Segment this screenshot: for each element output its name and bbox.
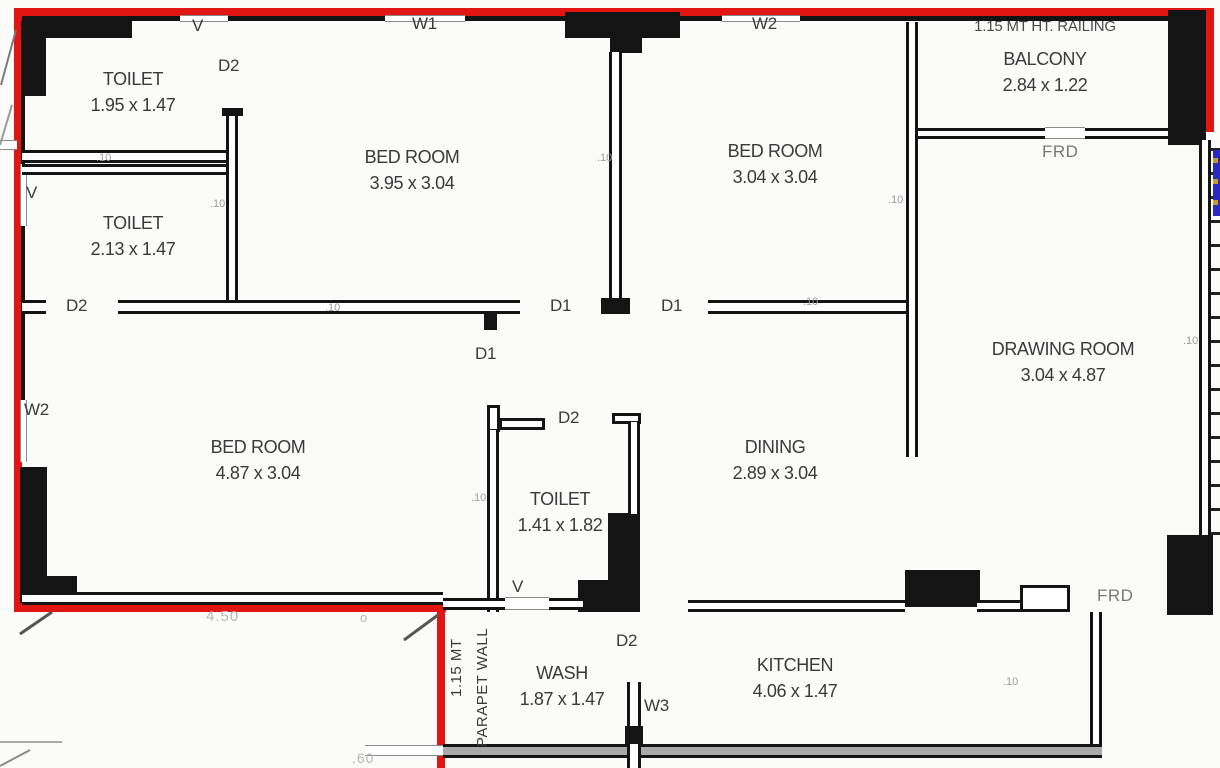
window-mark-w3: W3 [644,696,669,716]
room-label-bedroom-2: BED ROOM 3.04 x 3.04 [728,138,823,190]
window-mark-v-wash: V [512,577,523,597]
room-label-kitchen: KITCHEN 4.06 x 1.47 [753,652,838,704]
door-jamb [499,418,545,430]
window-v-wash [505,597,549,610]
outside-tick [0,140,17,150]
room-dims: 3.04 x 3.04 [728,164,823,190]
door-mark-d2-kitchen: D2 [616,631,637,651]
door-frd-balcony-opening [1045,127,1085,139]
wall-thickness-mark: .10 [471,492,486,504]
wall-toilet-right [226,112,238,302]
door-mark-d1-bedroom2: D1 [661,296,682,316]
room-dims: 1.95 x 1.47 [91,92,176,118]
outside-double-line [365,745,443,756]
column [1168,10,1206,145]
parapet-note-height: 1.15 MT [448,614,468,722]
room-dims: 4.06 x 1.47 [753,678,838,704]
door-mark-d2-toilet-mid: D2 [558,408,579,428]
room-name: BED ROOM [728,138,823,164]
door-mark-frd-entry: FRD [1097,586,1133,606]
window-mark-w1: W1 [412,14,437,34]
wall-notch [484,314,497,330]
room-dims: 2.13 x 1.47 [91,236,176,262]
wall-stub [22,300,46,314]
wall-w3-cap [625,726,643,744]
room-dims: 1.87 x 1.47 [520,686,605,712]
room-name: KITCHEN [753,652,838,678]
room-dims: 2.89 x 3.04 [733,460,818,486]
wall-thickness-mark: .10 [597,152,612,164]
wall-thickness-mark: .10 [888,194,903,206]
wall-cap [222,108,243,116]
wall-bottom [443,744,1102,758]
wall-thickness-mark: .10 [803,296,818,308]
column [608,513,640,612]
wall-toilet1-bottom [22,150,238,163]
window-mark-w2-top: W2 [752,14,777,34]
room-name: TOILET [91,66,176,92]
room-dims: 1.41 x 1.82 [518,512,603,538]
wall-bedroom-divider [609,52,622,302]
room-name: BALCONY [1003,46,1088,72]
room-label-toilet-3: TOILET 1.41 x 1.82 [518,486,603,538]
column [565,12,680,38]
column [610,38,642,53]
wall-w3 [627,682,641,768]
room-name: BED ROOM [365,144,460,170]
room-name: BED ROOM [211,434,306,460]
room-label-dining: DINING 2.89 x 3.04 [733,434,818,486]
wall-drawing-right [1199,140,1211,535]
window-mark-v-left: V [26,183,37,203]
column [1167,535,1213,615]
window-mark-w2-left: W2 [24,400,49,420]
door-mark-frd-balcony: FRD [1042,142,1078,162]
room-name: DRAWING ROOM [992,336,1135,362]
room-name: DINING [733,434,818,460]
wall-toilet2-top [22,164,232,175]
room-dims: 2.84 x 1.22 [1003,72,1088,98]
column [905,570,980,607]
dimension-bottom-width: 4.50 [206,608,239,625]
room-dims: 3.95 x 3.04 [365,170,460,196]
outside-line [0,741,62,743]
room-dims: 4.87 x 3.04 [211,460,306,486]
room-label-toilet-1: TOILET 1.95 x 1.47 [91,66,176,118]
room-dims: 3.04 x 4.87 [992,362,1135,388]
window-v-top [180,15,228,22]
wall-balcony-bottom [918,128,1045,139]
room-label-bedroom-3: BED ROOM 4.87 x 3.04 [211,434,306,486]
door-frd-entry-leaf [1020,585,1070,612]
balcony-railing-note: 1.15 MT HT. RAILING [974,18,1116,35]
door-mark-d2-toilet-top: D2 [218,56,239,76]
room-name: TOILET [91,210,176,236]
wall-top-segment [800,16,922,21]
wall-cap [601,298,630,314]
wall-left-segment [21,21,25,164]
wall-thickness-mark: .10 [1003,676,1018,688]
wall-kitchen-right [1090,612,1102,748]
wall-thickness-mark: .10 [96,152,111,164]
wall-top-segment [228,16,385,21]
adjacent-unit-dashes [1213,158,1218,208]
wall-balcony-bottom [1085,128,1168,139]
dimension-circle-mark: o [360,610,368,625]
dimension-offset: .60 [352,750,374,766]
column [22,16,46,96]
room-name: TOILET [518,486,603,512]
window-mark-v-top: V [192,16,203,36]
parapet-note-label: PARAPET WALL [474,606,496,768]
door-mark-d1-hall: D1 [475,344,496,364]
wall-toilet3-right [628,422,640,514]
room-label-balcony: BALCONY 2.84 x 1.22 [1003,46,1088,98]
wall-bedroom2-right [906,22,918,457]
wall-bedroom3-bottom [22,592,443,605]
boundary-right [1206,8,1214,132]
wall-kitchen-top [977,600,1022,612]
wall-thickness-mark: .10 [325,302,340,314]
door-mark-d1-bedroom1: D1 [550,296,571,316]
wall-thickness-mark: .10 [1183,335,1198,347]
wall-kitchen-top [688,600,905,612]
wall-toilet3-left [487,430,499,612]
floor-plan: TOILET 1.95 x 1.47 TOILET 2.13 x 1.47 BE… [0,0,1220,768]
room-label-bedroom-1: BED ROOM 3.95 x 3.04 [365,144,460,196]
wall-bedroom1-bottom [118,300,520,314]
door-mark-d2-left: D2 [66,296,87,316]
room-label-wash: WASH 1.87 x 1.47 [520,660,605,712]
room-label-drawing-room: DRAWING ROOM 3.04 x 4.87 [992,336,1135,388]
room-name: WASH [520,660,605,686]
wall-thickness-mark: .10 [210,198,225,210]
room-label-toilet-2: TOILET 2.13 x 1.47 [91,210,176,262]
